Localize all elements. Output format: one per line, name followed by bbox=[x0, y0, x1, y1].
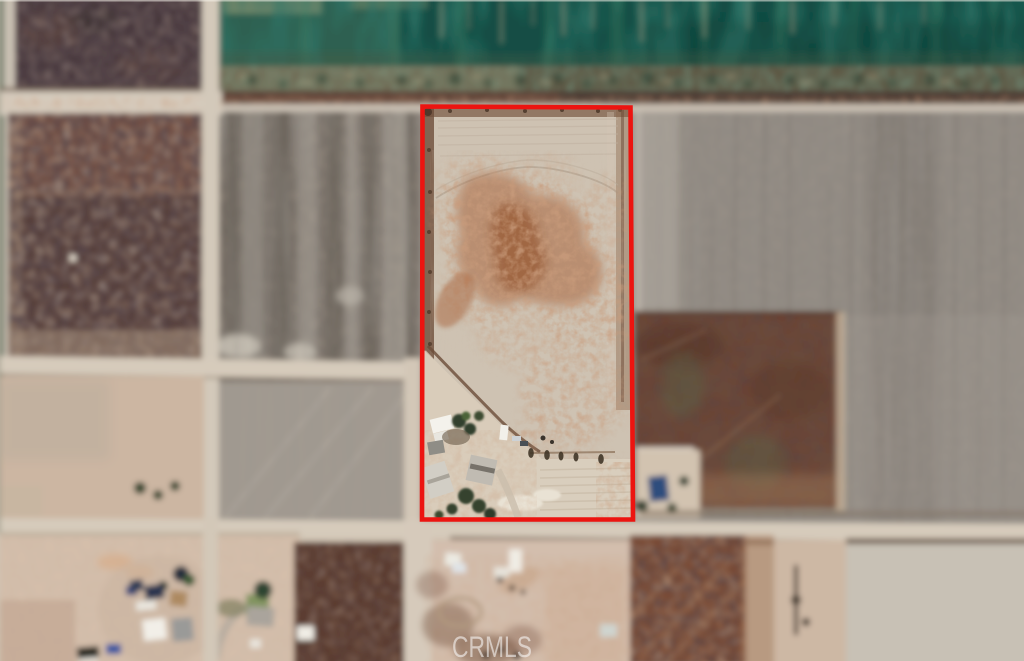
svg-text:CRMLS: CRMLS bbox=[452, 631, 532, 661]
